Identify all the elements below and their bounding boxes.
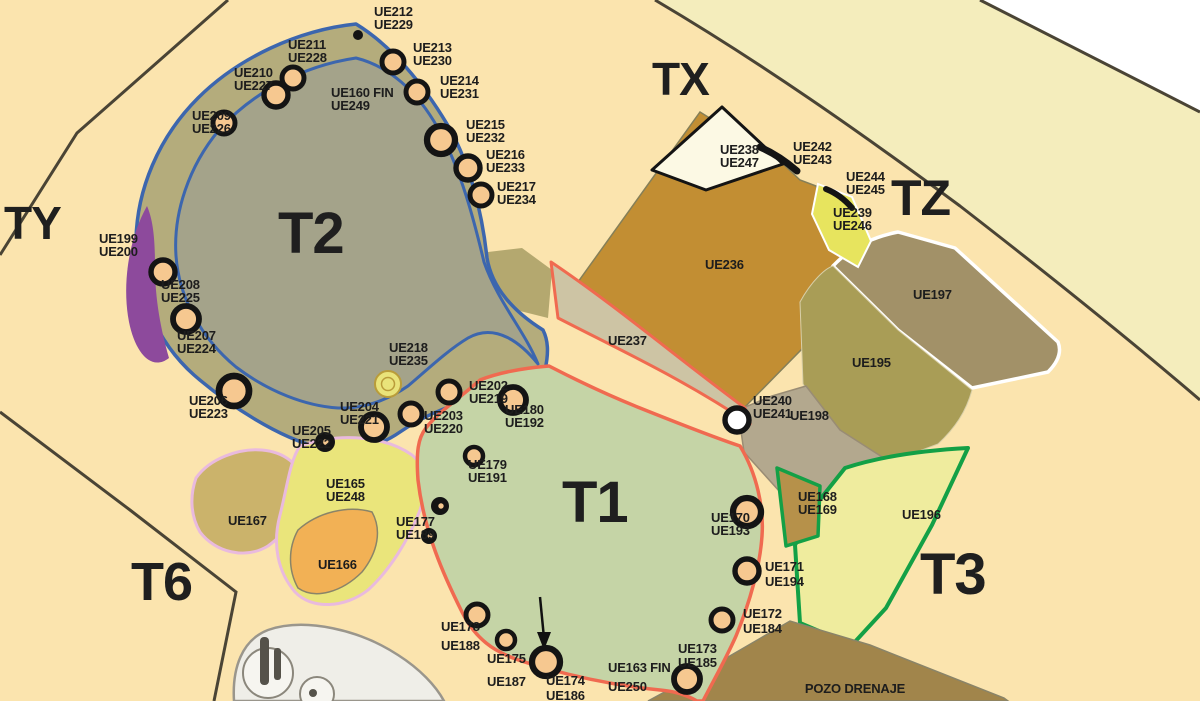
unit-label: UE208UE225 <box>161 277 200 305</box>
unit-label: UE214UE231 <box>440 73 480 101</box>
unit-label: UE207UE224 <box>177 328 217 356</box>
unit-label: UE165UE248 <box>326 476 365 504</box>
unit-label: UE171UE194 <box>765 559 805 589</box>
zone-title-t3: T3 <box>920 542 986 607</box>
pit-feature-ring <box>382 51 404 73</box>
unit-label: UE215UE232 <box>466 117 505 145</box>
pit-feature-yellow <box>375 371 401 397</box>
unit-label: UE216UE233 <box>486 147 525 175</box>
unit-label: UE210UE227 <box>234 65 273 93</box>
unit-label: UE211UE228 <box>288 37 327 65</box>
unit-label: UE217UE234 <box>497 179 537 207</box>
unit-label: UE203UE220 <box>424 408 463 436</box>
pit-feature-ring <box>400 403 422 425</box>
unit-label: POZO DRENAJE <box>805 681 906 696</box>
pit-feature-white-ring <box>725 408 749 432</box>
pit-feature-ring <box>532 648 560 676</box>
zone-title-ty: TY <box>4 197 61 249</box>
pit-feature-ring <box>427 126 455 154</box>
unit-label: UE196 <box>902 507 941 522</box>
unit-label: UE197 <box>913 287 952 302</box>
unit-label: UE242UE243 <box>793 139 832 167</box>
unit-label: UE236 <box>705 257 744 272</box>
zone-title-t6: T6 <box>131 552 192 612</box>
unit-label: UE173UE185 <box>678 641 717 670</box>
unit-label: UE167 <box>228 513 267 528</box>
zone-title-t1: T1 <box>562 470 628 535</box>
pit-feature-dot <box>353 30 363 40</box>
unit-label: UE238UE247 <box>720 142 759 170</box>
unit-label: UE212UE229 <box>374 4 413 32</box>
unit-label: UE209UE226 <box>192 108 231 136</box>
pit-feature-blob-center <box>438 503 443 508</box>
unit-label: UE205UE222 <box>292 423 331 451</box>
unit-label: UE240UE241 <box>753 393 792 421</box>
pit-feature-ring <box>470 184 492 206</box>
unit-label: UE218UE235 <box>389 340 428 368</box>
unit-label: UE244UE245 <box>846 169 886 197</box>
pit-feature-ring <box>438 381 460 403</box>
unit-label: UE202UE219 <box>469 378 508 406</box>
structure-bar-2 <box>274 648 281 680</box>
pit-feature-ring <box>735 559 759 583</box>
unit-label: UE177UE189 <box>396 514 435 542</box>
unit-label: UE172UE184 <box>743 606 783 636</box>
unit-label: UE180UE192 <box>505 402 544 430</box>
unit-label: UE168UE169 <box>798 489 837 517</box>
unit-label: UE199UE200 <box>99 231 138 259</box>
pit-feature-ring <box>456 156 480 180</box>
unit-label: UE204UE221 <box>340 399 380 427</box>
site-plan: UE212UE229UE211UE228UE213UE230UE210UE227… <box>0 0 1200 701</box>
unit-label: UE174UE186 <box>546 673 586 701</box>
pit-feature-ring <box>406 81 428 103</box>
unit-label: UE239UE246 <box>833 205 872 233</box>
structure-circle-small <box>300 677 334 701</box>
unit-label: UE166 <box>318 557 357 572</box>
pit-feature-ring <box>711 609 733 631</box>
zone-title-tz: TZ <box>891 170 951 226</box>
unit-label: UE170UE193 <box>711 510 750 538</box>
unit-label: UE195 <box>852 355 891 370</box>
unit-label: UE213UE230 <box>413 40 452 68</box>
unit-label: UE237 <box>608 333 647 348</box>
zone-title-t2: T2 <box>278 201 344 266</box>
structure-bar <box>260 637 269 685</box>
unit-label: UE179UE191 <box>468 457 507 485</box>
zone-title-tx: TX <box>652 53 710 105</box>
pit-feature-ring <box>497 631 515 649</box>
unit-label: UE206UE223 <box>189 393 228 421</box>
unit-label: UE198 <box>790 408 829 423</box>
structure-dot <box>309 689 317 697</box>
